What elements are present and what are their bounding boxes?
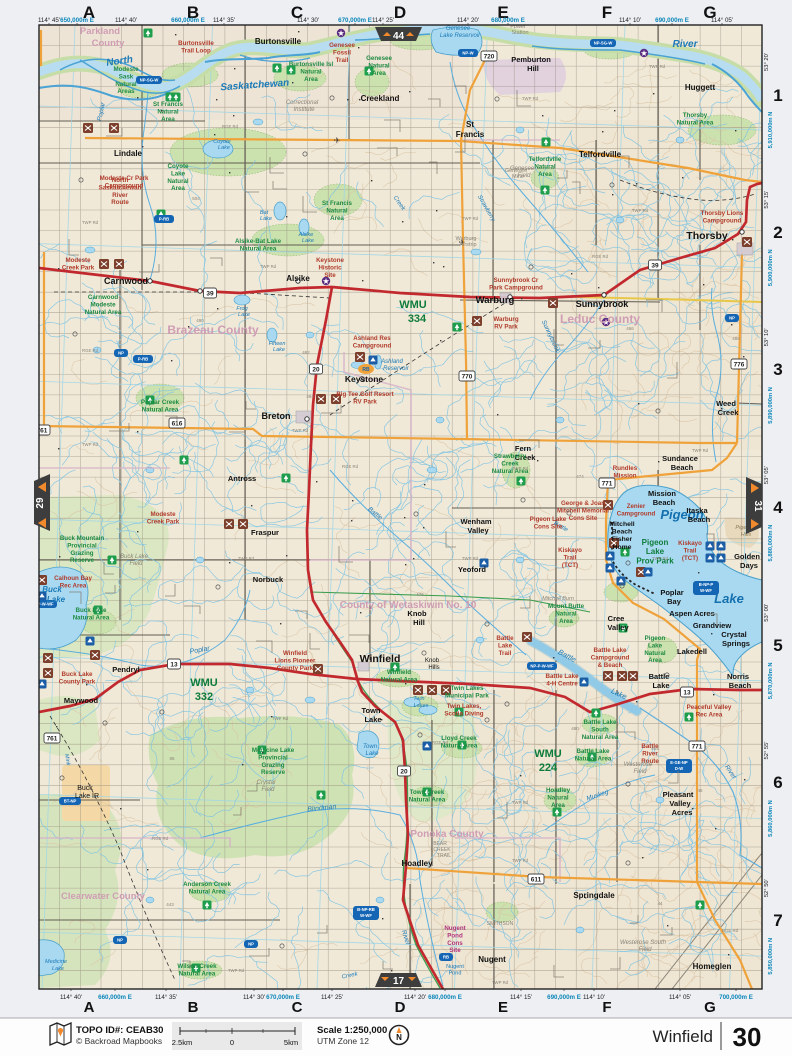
svg-text:Reservoir: Reservoir [383,366,410,372]
svg-text:53° 15': 53° 15' [764,191,770,209]
svg-text:Springdale: Springdale [573,891,615,900]
svg-text:Fossil: Fossil [333,49,351,56]
svg-text:A: A [84,999,95,1016]
svg-text:114° 35': 114° 35' [155,994,177,1001]
svg-text:Calhoun Bay: Calhoun Bay [54,575,92,582]
svg-text:Twin Lakes,: Twin Lakes, [447,703,482,710]
svg-text:★: ★ [641,50,648,58]
svg-text:Lions Pioneer: Lions Pioneer [275,657,317,664]
svg-text:Norris: Norris [727,672,749,681]
svg-text:D: D [395,999,406,1016]
svg-text:Beach: Beach [729,681,752,690]
svg-text:Kiskayo: Kiskayo [558,547,582,554]
svg-text:NP: NP [248,942,254,947]
svg-text:Natural Area: Natural Area [179,970,216,977]
svg-text:Mitchell: Mitchell [609,521,634,528]
svg-text:Trail: Trail [684,547,697,554]
svg-text:Institute: Institute [293,107,315,113]
svg-text:Area: Area [551,802,565,809]
svg-text:332: 332 [195,691,213,703]
svg-text:River: River [112,192,128,199]
svg-text:St: St [466,120,474,129]
svg-text:Town: Town [363,744,378,750]
svg-text:Buck Mountain: Buck Mountain [60,535,105,542]
svg-text:(TCT): (TCT) [562,562,578,569]
svg-text:5,860,000m N: 5,860,000m N [768,800,774,837]
svg-text:3: 3 [773,360,782,379]
svg-text:Antross: Antross [228,474,256,483]
svg-text:Kiskayo: Kiskayo [678,540,702,547]
svg-text:39: 39 [206,291,214,298]
svg-text:Trail: Trail [564,554,577,561]
svg-text:TWP Rd: TWP Rd [82,220,99,225]
svg-text:Acres: Acres [672,808,693,817]
svg-text:NP-P-W-WF: NP-P-W-WF [530,664,554,669]
svg-text:Airstrip: Airstrip [459,242,476,248]
svg-text:Route: Route [111,199,129,206]
svg-text:Carnwood: Carnwood [88,294,118,301]
svg-text:5km: 5km [284,1038,298,1047]
svg-text:NP: NP [729,316,735,321]
svg-text:Zenier: Zenier [627,503,646,510]
svg-text:P-RB: P-RB [138,357,148,362]
svg-text:114° 25': 114° 25' [372,17,394,24]
svg-text:Nugent: Nugent [444,925,465,932]
svg-text:Natural: Natural [115,81,137,88]
svg-text:Modeste Cr Park: Modeste Cr Park [100,175,149,182]
svg-text:30: 30 [733,1022,762,1052]
svg-text:TWP Rd: TWP Rd [272,716,289,721]
svg-text:Battle Lake: Battle Lake [583,719,617,726]
svg-text:5,910,000m N: 5,910,000m N [768,112,774,149]
svg-text:Lake: Lake [238,312,250,318]
svg-text:Natural: Natural [555,610,577,617]
svg-text:F: F [602,3,612,22]
svg-text:Area: Area [171,185,185,192]
svg-text:Peaceful Valley: Peaceful Valley [687,704,732,711]
svg-text:Buck Lake: Buck Lake [76,607,108,614]
svg-text:20: 20 [312,367,320,374]
svg-text:Lakes: Lakes [414,703,429,709]
svg-text:Cons Site: Cons Site [569,515,598,522]
svg-text:5,880,000m N: 5,880,000m N [768,525,774,562]
svg-text:476: 476 [416,592,424,597]
svg-text:Field: Field [129,561,143,567]
svg-text:Valley: Valley [467,526,489,535]
svg-text:660,000m E: 660,000m E [98,994,132,1001]
svg-text:Carnwood: Carnwood [104,276,148,286]
svg-text:St Francis: St Francis [322,200,352,207]
svg-text:Hoadley: Hoadley [546,787,571,794]
svg-text:690,000m E: 690,000m E [547,994,581,1001]
svg-text:Natural: Natural [157,108,179,115]
svg-text:Ashland: Ashland [380,359,403,365]
svg-text:Areas: Areas [117,88,135,95]
svg-text:5,850,000m N: 5,850,000m N [768,938,774,975]
svg-text:Thorsby: Thorsby [686,230,728,242]
svg-text:114° 05': 114° 05' [669,994,691,1001]
svg-text:650,000m E: 650,000m E [60,17,94,24]
svg-text:114° 10': 114° 10' [619,17,641,24]
svg-text:Hills: Hills [428,665,439,671]
svg-text:114° 40': 114° 40' [60,994,82,1001]
svg-text:Lake: Lake [365,751,379,757]
svg-text:504: 504 [192,196,200,201]
svg-text:Natural: Natural [534,163,556,170]
svg-text:Field: Field [638,947,652,953]
svg-text:RGE Rd: RGE Rd [222,124,239,129]
svg-text:South: South [591,726,609,733]
svg-text:Hoadley: Hoadley [401,859,433,868]
svg-text:Beach: Beach [671,463,694,472]
svg-text:Warburg: Warburg [476,295,515,306]
svg-text:Mitchell Burn: Mitchell Burn [542,596,574,602]
svg-text:0: 0 [230,1038,234,1047]
svg-text:Provincial: Provincial [258,754,288,761]
svg-text:Lake Reservoir: Lake Reservoir [440,33,481,39]
svg-text:G: G [704,999,716,1016]
svg-text:B-NP-RB: B-NP-RB [357,907,375,912]
svg-text:Aspen Acres: Aspen Acres [669,609,715,618]
svg-text:Lake: Lake [302,238,314,244]
svg-text:Campground: Campground [703,217,742,224]
svg-text:Valley: Valley [669,799,691,808]
svg-text:TWP Rd: TWP Rd [652,556,669,561]
svg-text:1: 1 [773,86,782,105]
svg-text:F: F [602,999,611,1016]
svg-text:Pond: Pond [447,932,463,939]
svg-text:Lake: Lake [364,715,381,724]
svg-text:Town: Town [361,706,380,715]
svg-text:Scotia Diving: Scotia Diving [444,710,483,717]
svg-text:Lake: Lake [52,966,64,972]
svg-text:4: 4 [773,498,783,517]
svg-text:RV Park: RV Park [353,398,377,405]
svg-text:UTM Zone 12: UTM Zone 12 [317,1036,369,1046]
svg-text:Springs: Springs [722,639,750,648]
svg-text:Natural: Natural [326,207,348,214]
svg-text:Trail: Trail [336,57,349,64]
svg-text:TOPO ID#: CEAB30: TOPO ID#: CEAB30 [76,1025,163,1036]
svg-text:Modeste: Modeste [90,301,116,308]
svg-text:Correctional: Correctional [286,100,319,106]
svg-text:720: 720 [484,54,495,61]
svg-text:Battle: Battle [496,635,514,642]
svg-text:TWP Rd: TWP Rd [522,96,539,101]
svg-text:4-H Centre: 4-H Centre [546,680,578,687]
svg-text:6: 6 [773,773,782,792]
svg-text:Keystone: Keystone [345,374,384,384]
svg-text:Cons: Cons [447,940,463,947]
svg-text:River: River [642,750,658,757]
svg-text:53° 05': 53° 05' [764,466,770,484]
svg-text:114° 35': 114° 35' [213,17,235,24]
svg-text:RGE Rd: RGE Rd [722,928,739,933]
svg-text:WMU: WMU [399,299,427,311]
svg-text:Parkland: Parkland [80,26,120,37]
svg-text:E: E [498,999,508,1016]
svg-text:771: 771 [602,481,613,488]
svg-text:53° 20': 53° 20' [764,53,770,71]
svg-text:86: 86 [169,756,175,761]
svg-text:TWP Rd: TWP Rd [238,556,255,561]
svg-text:RGE Rd: RGE Rd [592,254,609,259]
svg-text:770: 770 [462,374,473,381]
svg-text:Pigeon Lake: Pigeon Lake [530,516,567,523]
svg-text:RGE Rd: RGE Rd [152,836,169,841]
svg-text:Natural Area: Natural Area [73,614,110,621]
svg-text:Maywood: Maywood [64,696,99,705]
svg-text:488: 488 [732,336,740,341]
svg-text:County Park: County Park [59,678,96,685]
svg-text:44: 44 [657,901,663,906]
svg-text:114° 30': 114° 30' [243,994,265,1001]
svg-text:Grazing: Grazing [70,550,93,557]
svg-text:52° 55': 52° 55' [764,742,770,760]
svg-text:TWP Rd: TWP Rd [462,216,479,221]
svg-text:SMITHSON: SMITHSON [487,921,514,927]
svg-text:Trail: Trail [499,650,512,657]
svg-text:Park Campground: Park Campground [489,284,543,291]
svg-text:Mission: Mission [648,489,676,498]
svg-text:Field: Field [633,769,647,775]
svg-text:Lake: Lake [714,591,744,606]
svg-text:RGE Rd: RGE Rd [342,464,359,469]
svg-text:W-WF: W-WF [360,913,372,918]
svg-text:Buck: Buck [77,785,93,792]
svg-text:Natural Area: Natural Area [240,245,277,252]
svg-text:Knob: Knob [425,658,440,664]
svg-text:Twin: Twin [413,696,424,702]
svg-text:Burtonsville Isl: Burtonsville Isl [289,61,334,68]
svg-text:River: River [672,39,698,50]
svg-text:Modeste: Modeste [150,511,176,518]
svg-text:Lindale: Lindale [114,149,143,158]
svg-text:Natural: Natural [368,62,390,69]
svg-text:114° 20': 114° 20' [457,17,479,24]
svg-text:Lake: Lake [646,547,665,556]
svg-text:Wenham: Wenham [460,517,491,526]
svg-text:Rundles: Rundles [613,465,638,472]
svg-text:Keystone: Keystone [316,257,344,264]
svg-text:Mine: Mine [512,174,524,180]
svg-text:680,000m E: 680,000m E [491,17,525,24]
svg-text:Campground: Campground [617,510,656,517]
svg-text:Lake: Lake [171,170,186,177]
svg-text:Poplar: Poplar [660,588,683,597]
svg-text:Scale 1:250,000: Scale 1:250,000 [317,1025,387,1036]
svg-text:Hill: Hill [527,64,539,73]
svg-text:Warburg: Warburg [493,316,518,323]
svg-text:Beach: Beach [612,529,632,536]
svg-text:TWP Rd: TWP Rd [692,448,709,453]
svg-text:Municipal Park: Municipal Park [445,692,489,699]
svg-text:Area: Area [559,618,573,625]
svg-text:2: 2 [773,223,782,242]
svg-text:Buck Lake: Buck Lake [120,554,149,560]
svg-text:NP-SG-W: NP-SG-W [140,78,159,83]
svg-text:Creek Park: Creek Park [147,518,180,525]
svg-text:Historic: Historic [318,264,342,271]
svg-text:Grazing: Grazing [261,762,284,769]
svg-text:© Backroad Mapbooks: © Backroad Mapbooks [76,1036,162,1046]
svg-text:Thorsby: Thorsby [683,112,708,119]
svg-text:Lake: Lake [648,642,663,649]
svg-text:20: 20 [400,769,408,776]
svg-text:Natural Area: Natural Area [189,888,226,895]
svg-text:Pigeon: Pigeon [642,538,669,547]
svg-text:Fern: Fern [515,444,532,453]
svg-text:776: 776 [734,362,745,369]
svg-text:Ponoka County: Ponoka County [410,829,484,840]
svg-text:Genesee: Genesee [366,55,392,62]
svg-text:Yeoford: Yeoford [458,565,486,574]
svg-text:Natural: Natural [547,794,569,801]
svg-text:County Park: County Park [277,665,314,672]
svg-text:TWP Rd: TWP Rd [462,556,479,561]
svg-text:Site: Site [449,947,461,954]
svg-text:Fraspur: Fraspur [251,528,279,537]
svg-text:TRAIL: TRAIL [437,853,451,859]
svg-text:✈: ✈ [334,136,341,145]
svg-text:Crystal: Crystal [257,780,276,786]
svg-text:Area: Area [372,70,386,77]
svg-text:Twin Lakes: Twin Lakes [451,685,484,692]
svg-text:Fisher: Fisher [612,536,633,543]
svg-text:Modeste: Modeste [65,257,91,264]
svg-text:Lake: Lake [652,681,669,690]
svg-text:Poplar Creek: Poplar Creek [141,399,180,406]
svg-text:NP: NP [118,351,124,356]
svg-text:Creek: Creek [718,408,740,417]
svg-text:5,870,000m N: 5,870,000m N [768,662,774,699]
svg-text:Alsike: Alsike [286,274,310,283]
svg-text:13: 13 [683,690,691,697]
svg-text:494: 494 [306,394,314,399]
svg-text:Area: Area [161,116,175,123]
svg-text:Anderson Creek: Anderson Creek [183,881,231,888]
svg-text:TWP Rd: TWP Rd [292,428,309,433]
svg-text:Natural: Natural [167,178,189,185]
svg-text:Rec Area: Rec Area [60,582,87,589]
svg-text:114° 25': 114° 25' [321,994,343,1001]
svg-text:Station: Station [511,30,528,36]
svg-text:Natural Area: Natural Area [575,755,612,762]
svg-text:680,000m E: 680,000m E [428,994,462,1001]
svg-text:5,900,000m N: 5,900,000m N [768,249,774,286]
svg-text:771: 771 [692,744,703,751]
svg-text:334: 334 [408,313,427,325]
svg-text:TWP Rd: TWP Rd [260,264,277,269]
svg-text:Big Tee Golf Resort: Big Tee Golf Resort [336,391,393,398]
svg-text:Natural Area: Natural Area [142,406,179,413]
svg-text:Nugent: Nugent [478,955,506,964]
svg-text:Itaska: Itaska [686,506,708,515]
svg-text:County: County [92,38,125,49]
svg-text:52° 50': 52° 50' [764,879,770,897]
svg-text:Westerose South: Westerose South [620,940,667,946]
svg-text:Lake: Lake [47,595,66,604]
svg-text:TWP Rd: TWP Rd [512,466,529,471]
svg-text:114° 15': 114° 15' [510,994,532,1001]
svg-text:RGE Rd: RGE Rd [432,740,449,745]
svg-text:45: 45 [697,788,703,793]
svg-text:474: 474 [576,474,584,479]
svg-text:31: 31 [752,500,763,512]
svg-text:Buck Lake: Buck Lake [62,671,94,678]
svg-text:Natural Area: Natural Area [381,676,418,683]
svg-text:114° 40': 114° 40' [115,17,137,24]
svg-text:(TCT): (TCT) [682,555,698,562]
svg-text:Brazeau County: Brazeau County [167,323,259,337]
svg-text:Breton: Breton [262,411,291,421]
svg-text:454: 454 [651,746,659,751]
svg-text:RV Park: RV Park [494,323,518,330]
svg-text:Pond: Pond [449,971,462,977]
svg-text:Lake: Lake [498,642,513,649]
svg-text:NP: NP [117,938,123,943]
svg-text:NP-SG-W: NP-SG-W [594,41,613,46]
svg-text:114° 30': 114° 30' [297,17,319,24]
svg-text:Westerose: Westerose [624,762,653,768]
svg-text:WMU: WMU [190,677,218,689]
svg-text:Natural Area: Natural Area [85,309,122,316]
svg-text:Winfield: Winfield [387,669,411,676]
svg-text:Rec Area: Rec Area [696,711,723,718]
svg-text:Telfordville: Telfordville [579,150,622,159]
svg-text:Valley: Valley [607,623,629,632]
svg-text:660,000m E: 660,000m E [171,17,205,24]
svg-text:2.5km: 2.5km [172,1038,192,1047]
svg-text:TWP Rd: TWP Rd [512,858,529,863]
svg-text:482: 482 [302,350,310,355]
svg-text:Area: Area [330,215,344,222]
svg-text:Days: Days [740,561,758,570]
svg-text:Lakedell: Lakedell [677,647,707,656]
svg-text:611: 611 [531,877,542,884]
svg-text:Natural Area: Natural Area [409,796,446,803]
svg-text:114° 20': 114° 20' [404,994,426,1001]
svg-text:443: 443 [166,902,174,907]
svg-text:17: 17 [393,976,405,987]
svg-text:13: 13 [170,662,178,669]
svg-text:Genesee: Genesee [446,26,471,32]
svg-text:Creek Park: Creek Park [62,264,95,271]
svg-text:Creekland: Creekland [361,94,400,103]
svg-text:39: 39 [651,263,659,270]
svg-text:Mitchell Memorial: Mitchell Memorial [557,507,609,514]
svg-text:P-RB: P-RB [159,217,169,222]
svg-text:Wilson Creek: Wilson Creek [177,963,217,970]
svg-text:TWP Rd: TWP Rd [492,980,509,985]
svg-text:Burtonsville: Burtonsville [178,40,214,47]
svg-text:Mission: Mission [613,472,636,479]
svg-text:N: N [396,1033,402,1042]
svg-text:Sundance: Sundance [662,454,698,463]
svg-text:Provincial: Provincial [67,542,97,549]
svg-text:Medicine Lake: Medicine Lake [252,747,295,754]
svg-text:George & Joan: George & Joan [561,500,605,507]
svg-text:D-W: D-W [675,766,683,771]
svg-text:Francis: Francis [456,130,485,139]
svg-text:Golden: Golden [734,552,760,561]
svg-text:RGE Rd: RGE Rd [82,348,99,353]
svg-text:700,000m E: 700,000m E [719,994,753,1001]
svg-text:761: 761 [47,736,58,743]
svg-text:Bay: Bay [667,597,682,606]
svg-text:Alsike-Bat Lake: Alsike-Bat Lake [235,238,282,245]
svg-text:53° 00': 53° 00' [764,604,770,622]
